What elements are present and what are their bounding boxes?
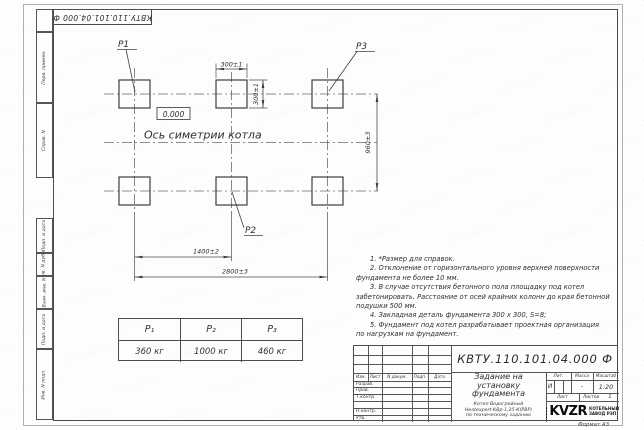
note-line: забетонировать. Расстояние от осей крайн…	[356, 293, 616, 302]
title-block-designation: КВТУ.110.101.04.000 Ф	[451, 346, 619, 372]
note-line: 2. Отклонение от горизонтального уровня …	[356, 264, 616, 273]
lit-value: И	[546, 380, 554, 393]
pad-label-p1: P1	[118, 40, 129, 50]
dim-pad-height: 300±1	[252, 83, 260, 105]
notes-block: 1. *Размер для справок. 2. Отклонение от…	[356, 255, 616, 340]
note-line: фундамента не более 10 мм.	[356, 274, 616, 283]
note-line: по нагрузкам на фундамент.	[356, 330, 616, 339]
extension-lines	[135, 64, 328, 282]
note-line: 4. Закладная деталь фундамента 300 x 300…	[356, 311, 616, 320]
dim-pad-width: 300±1	[221, 61, 243, 69]
load-table-value: 360 кг	[119, 341, 181, 362]
elevation-mark-text: 0.000	[163, 110, 185, 119]
margin-label-podp-data-1: Подп. и дата	[36, 218, 53, 253]
margin-label-podp-data-2: Подп. и дата	[36, 309, 53, 349]
scale-label: Масштаб	[593, 372, 619, 380]
sheets-count: 1	[603, 393, 617, 401]
note-line: 3. В случае отсутствия бетонного пола пл…	[356, 283, 616, 292]
sheets-label: Листов	[579, 393, 603, 401]
mass-value: -	[571, 380, 593, 393]
note-line: подушки 500 мм.	[356, 302, 616, 311]
load-table-value-row: 360 кг 1000 кг 460 кг	[119, 341, 302, 362]
note-line: 5. Фундамент под котел разрабатывает про…	[356, 321, 616, 330]
load-table-header: P₂	[181, 319, 242, 340]
role-utv: Утв.	[354, 415, 382, 422]
sheet-label: Лист	[546, 393, 579, 401]
load-table-value: 460 кг	[242, 341, 302, 362]
load-table-value: 1000 кг	[181, 341, 242, 362]
kvzr-logo-text: KVZR	[549, 404, 587, 419]
margin-label-inv-podl: Инв. N подл.	[36, 349, 53, 420]
rev-col-podp: Подп.	[412, 373, 428, 381]
load-table: P₁ P₂ P₃ 360 кг 1000 кг 460 кг	[118, 318, 303, 361]
load-table-header: P₁	[119, 319, 181, 340]
title-block: КВТУ.110.101.04.000 Ф Изм. Лист N докум.…	[353, 345, 618, 421]
note-line: 1. *Размер для справок.	[356, 255, 616, 264]
rev-col-data: Дата	[428, 373, 451, 381]
pad-label-p2: P2	[245, 226, 256, 236]
rev-col-izm: Изм.	[354, 373, 368, 381]
kvzr-emblem-icon	[546, 406, 547, 418]
margin-label-vzam-inv: Взам. инв. N	[36, 276, 53, 309]
drawing-sheet: ········································…	[0, 0, 644, 430]
company-logo: KVZR КОТЕЛЬНЫЙ ЗАВОД РЭП	[546, 401, 619, 422]
product-name: Котел Водогрейный Heatexpert-КВр-1,25-К(…	[451, 399, 546, 422]
lit-label: Лит.	[546, 372, 571, 380]
document-title: Задание на установку фундамента	[451, 373, 546, 399]
margin-label-perv-primen: Перв. примен.	[36, 32, 53, 103]
company-name: КОТЕЛЬНЫЙ ЗАВОД РЭП	[589, 407, 619, 417]
dim-mid-pitch: 1400±2	[193, 248, 219, 256]
axis-caption: Ось симетрии котла	[144, 129, 262, 142]
margin-label-inv-dubl: Инв. N дубл.	[36, 253, 53, 276]
load-table-header-row: P₁ P₂ P₃	[119, 319, 302, 341]
format-label: Формат А3	[566, 422, 621, 428]
scale-value: 1:20	[593, 380, 619, 393]
margin-label-sprav-n: Справ. N	[36, 103, 53, 178]
load-table-header: P₃	[242, 319, 302, 340]
rev-col-list: Лист	[368, 373, 382, 381]
pad-label-p3: P3	[356, 42, 367, 52]
mass-label: Масса	[571, 372, 593, 380]
leader-lines	[117, 50, 375, 236]
rev-col-ndokum: N докум.	[382, 373, 412, 381]
margin-box-empty	[36, 9, 53, 32]
dim-full-pitch: 2800±3	[222, 268, 248, 276]
dim-row-pitch: 960±3	[364, 132, 372, 154]
